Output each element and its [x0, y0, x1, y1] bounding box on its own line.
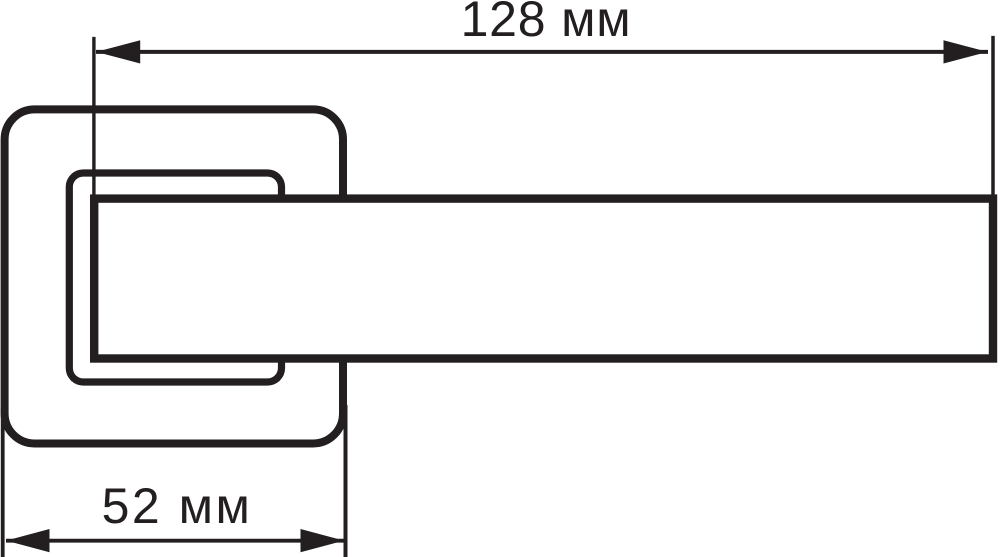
svg-text:128 мм: 128 мм — [461, 0, 632, 47]
svg-text:52 мм: 52 мм — [102, 478, 253, 534]
